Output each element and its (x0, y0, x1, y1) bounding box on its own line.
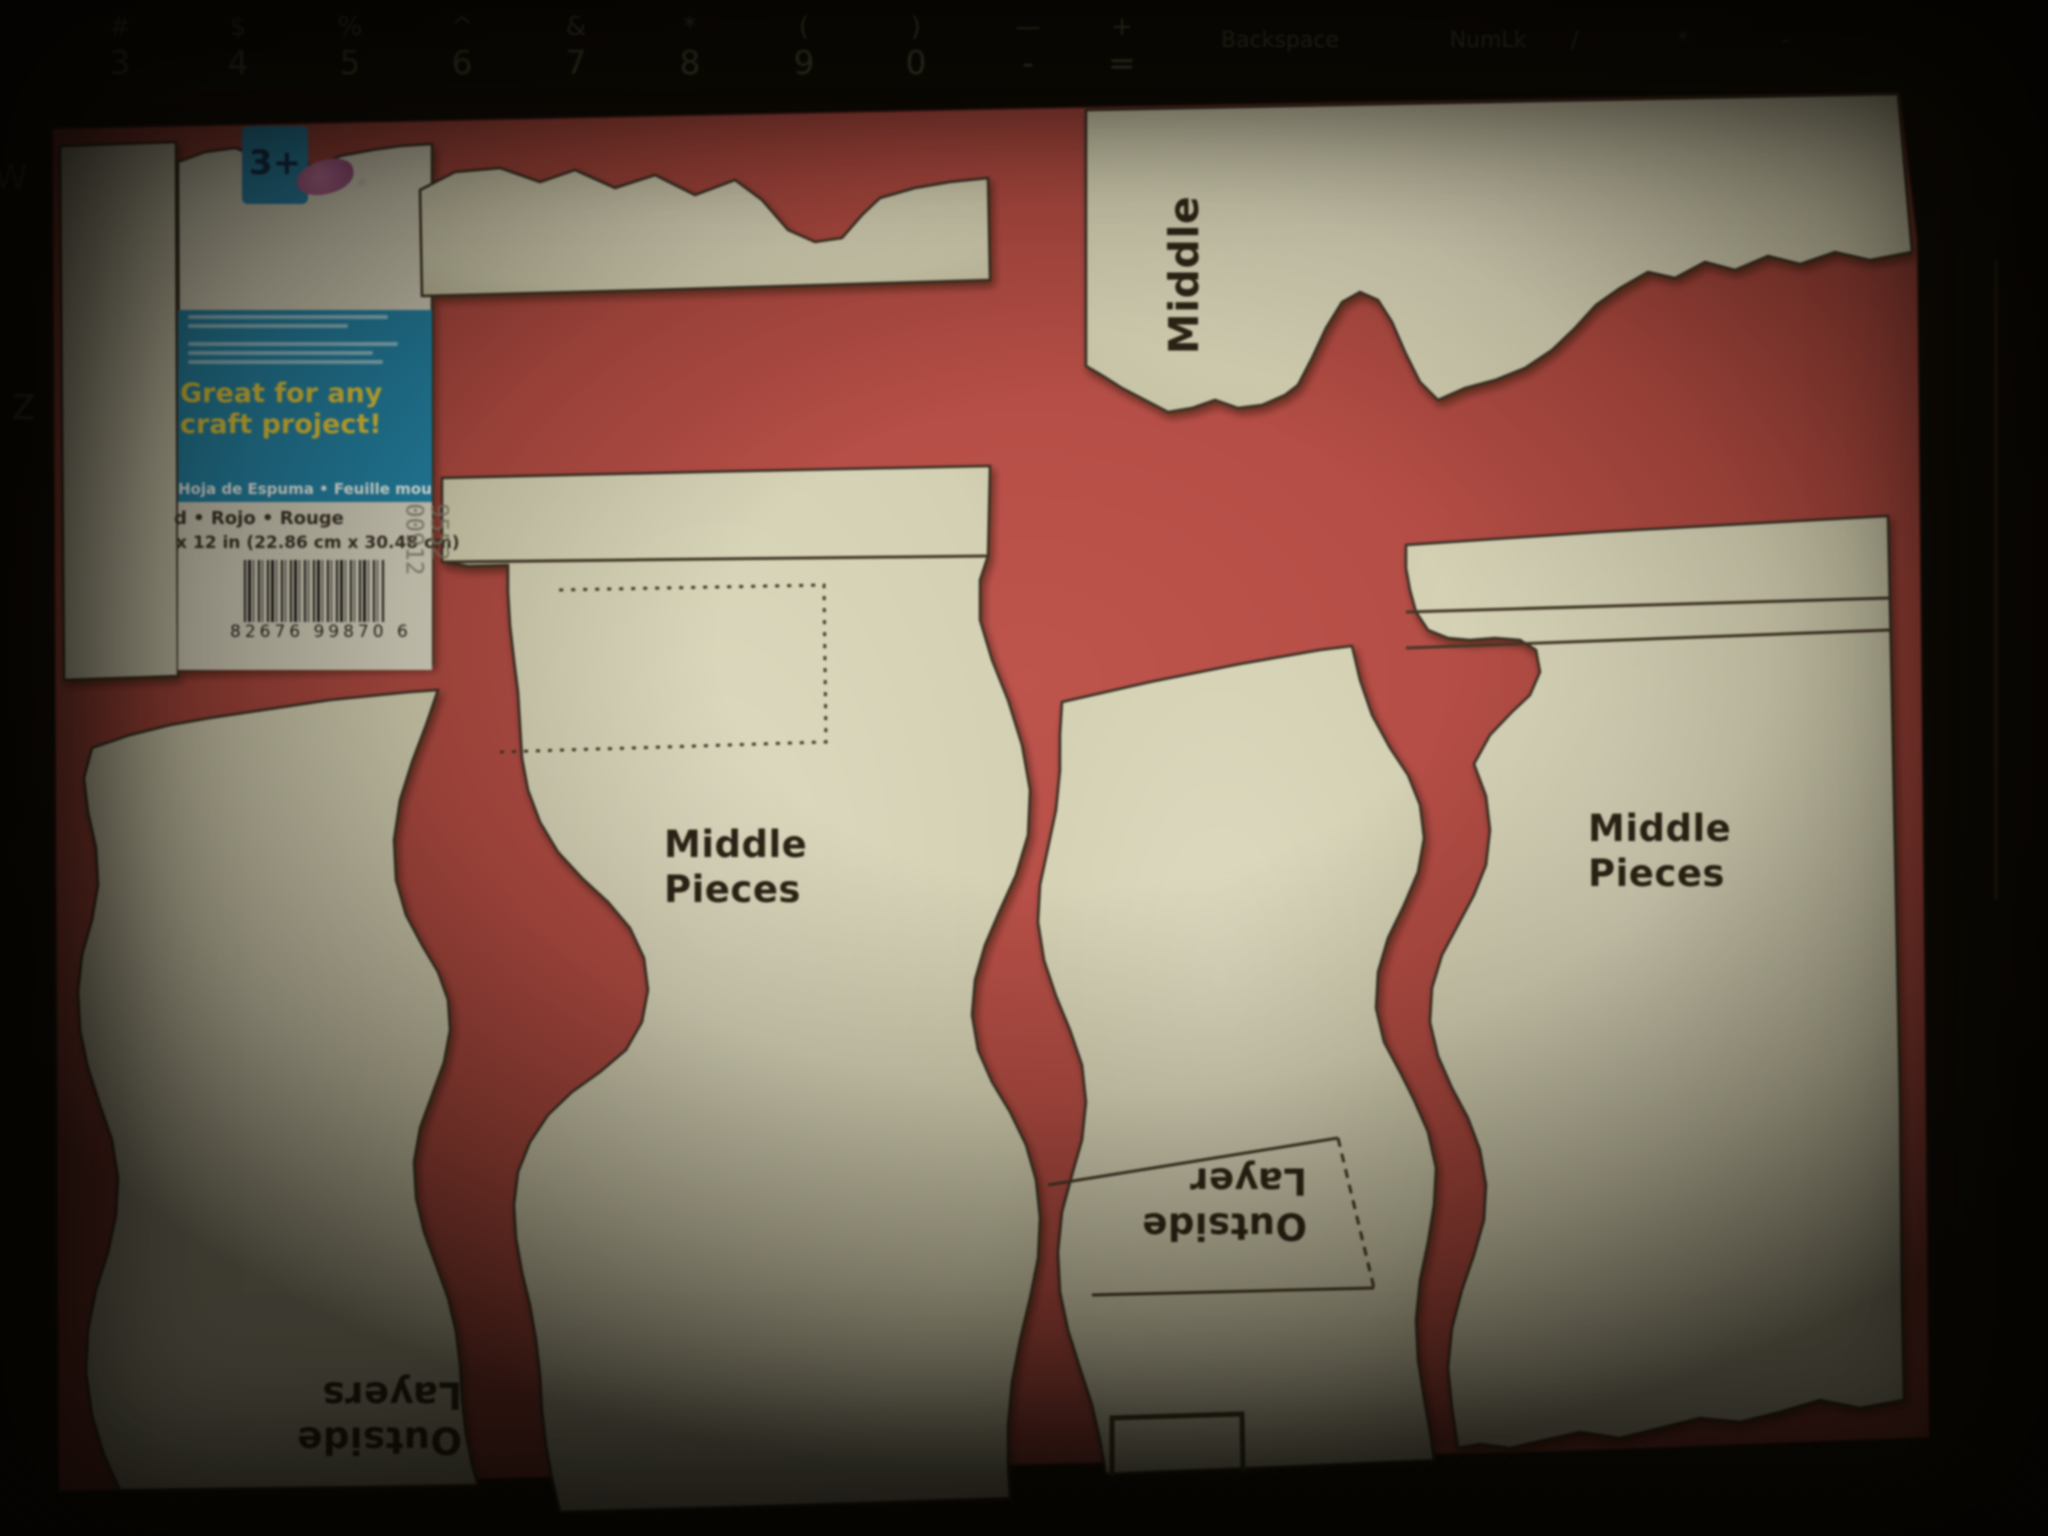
fine-print-line (188, 315, 388, 319)
outside-layers-label-upside-down: Outside Layers (292, 1372, 462, 1462)
fine-print-line (188, 342, 398, 346)
barcode-icon (244, 560, 386, 622)
middle-label-rotated: Middle (1159, 185, 1205, 365)
label-color-line: d • Rojo • Rouge (174, 508, 432, 529)
fine-print-line (188, 324, 348, 328)
age-3plus-badge: 3+ (242, 126, 308, 204)
middle-pieces-label-right: Middle Pieces (1588, 806, 1763, 896)
label-languages-line: Hoja de Espuma • Feuille mousse (178, 480, 432, 498)
foam-product-label: 3+ ® Great for any craft project! Hoja d… (178, 142, 432, 670)
outside-layer-label-upside-down: Outside Layer (1142, 1158, 1307, 1248)
photo-layer: # 3 $ 4 % 5 ^ 6 & 7 * 8 (0, 0, 2048, 1536)
fine-print-line (188, 360, 383, 364)
label-blue-panel: Great for any craft project! Hoja de Esp… (178, 310, 432, 502)
paper-card-strip (60, 142, 178, 680)
label-size-line: x 12 in (22.86 cm x 30.48 cm) (176, 533, 432, 553)
label-bottom-section: d • Rojo • Rouge x 12 in (22.86 cm x 30.… (178, 502, 432, 670)
paper-outside-layer-piece (1038, 646, 1436, 1474)
barcode-digits: 82676 99870 6 (230, 622, 412, 642)
stock-number-rotated: 9552 00912 (401, 503, 451, 575)
fine-print-line (188, 351, 373, 355)
middle-pieces-label-left: Middle Pieces (664, 822, 839, 912)
label-headline-line1: Great for any (180, 378, 432, 409)
label-headline-line2: craft project! (180, 409, 432, 440)
photo-of-foam-sheet-with-pattern-pieces: # 3 $ 4 % 5 ^ 6 & 7 * 8 (0, 0, 2048, 1536)
registered-trademark-icon: ® (356, 176, 369, 191)
